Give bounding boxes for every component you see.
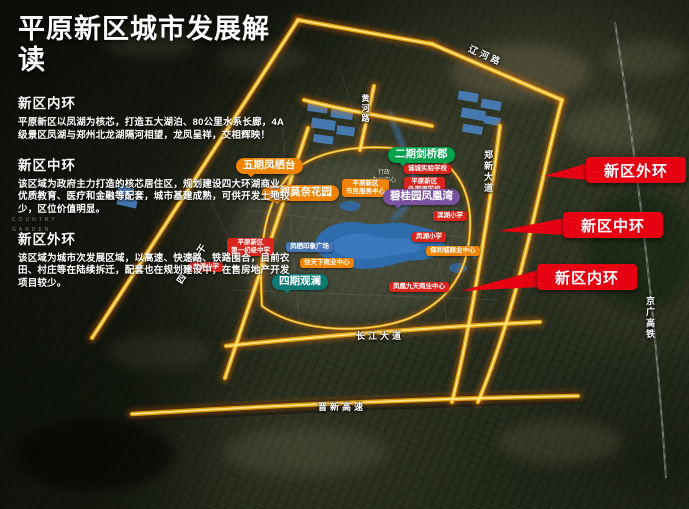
poi-chengcheng-school: 诚城实验学校 [404, 164, 451, 174]
map-canvas: 平原新区城市发展解读 新区内环 平原新区以凤湖为核芯，打造五大湖泊、80公里水系… [0, 0, 689, 509]
road-label-jinxin-expressway: 晋新高速 [318, 400, 366, 413]
poi-line1: 平原新区 [408, 178, 441, 186]
poi-phoenix-nine-sky-commercial: 凤凰九天商业中心 [389, 282, 449, 292]
section-heading-inner-ring: 新区内环 [18, 92, 290, 112]
road-label-changjiang-avenue: 长江大道 [356, 329, 404, 342]
poi-civic-service-center: 平原新区 市民服务中心 [342, 179, 389, 197]
callout-outer-ring: 新区外环 [586, 157, 686, 183]
road-label-huanghe: 黄河路 [360, 94, 371, 124]
section-body-inner-ring: 平原新区以凤湖为核芯，打造五大湖泊、80公里水系长廊，4A级景区凤湖与郑州北龙湖… [18, 117, 290, 142]
poi-fenghu-primary: 凤湖小学 [412, 232, 446, 242]
maptext-line: 行政 [372, 170, 396, 178]
poi-fengqi-plaza: 凤栖印象广场 [286, 242, 333, 252]
section-heading-outer-ring: 新区外环 [18, 228, 290, 248]
road-label-zhengxin-avenue: 郑新大道 [482, 150, 495, 194]
project-label-phase2: 二期剑桥郡 [388, 147, 455, 163]
section-body-middle-ring: 该区域为政府主力打造的核芯居住区，规划建设四大环湖商业、优质教育、医疗和金融等配… [18, 179, 290, 217]
section-body-outer-ring: 该区域为城市次发展区域，以高速、快速路、铁路围合，目前农田、村庄等在陆续拆迁，配… [18, 253, 290, 291]
project-label-phoenix-bay: 碧桂园凤凰湾 [383, 189, 460, 205]
road-label-jingguang-hsr: 京广高铁 [644, 296, 657, 340]
poi-line1: 平原新区 [346, 180, 385, 188]
callout-middle-ring: 新区中环 [563, 212, 663, 238]
page-title: 平原新区城市发展解读 [18, 14, 290, 76]
section-heading-middle-ring: 新区中环 [18, 154, 290, 174]
callout-inner-ring: 新区内环 [537, 264, 637, 290]
poi-binhu-primary: 滨湖小学 [433, 211, 467, 221]
poi-zhutianxia-commercial: 住天下商业中心 [300, 258, 354, 268]
poi-line2: 市民服务中心 [346, 188, 385, 196]
info-panel: 平原新区城市发展解读 新区内环 平原新区以凤湖为核芯，打造五大湖泊、80公里水系… [18, 14, 290, 291]
poi-baolicheng-commercial: 保利城商业中心 [426, 246, 480, 256]
